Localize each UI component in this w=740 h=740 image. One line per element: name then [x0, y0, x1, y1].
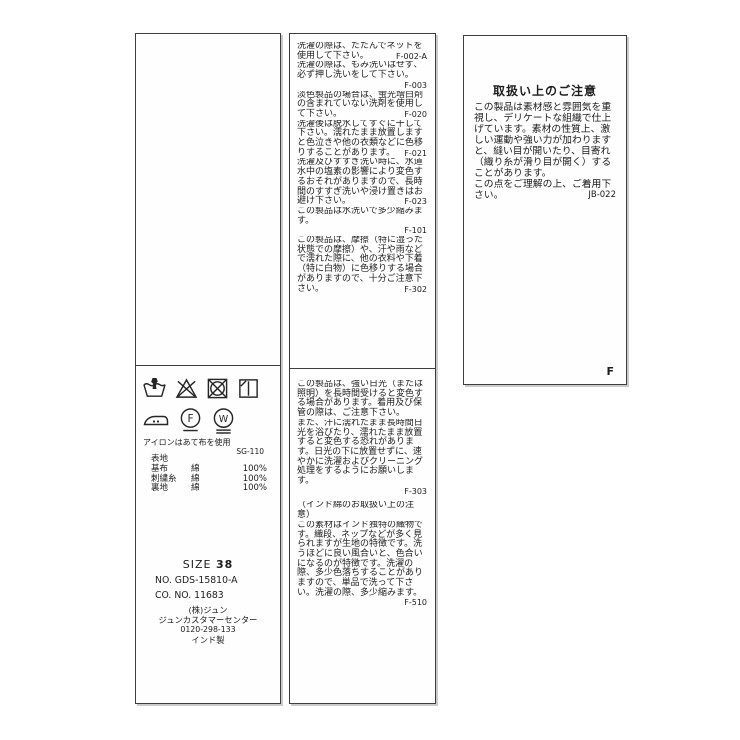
care-symbols-row-1	[142, 377, 260, 400]
item-number: NO. GDS-15810-A	[155, 575, 238, 586]
size-label: SIZE	[183, 558, 212, 571]
svg-text:W: W	[219, 414, 229, 425]
care-paragraph-code: F-510	[404, 598, 427, 608]
care-paragraph-code: F-002-A	[396, 52, 427, 62]
hand-wash-icon	[142, 377, 167, 400]
care-paragraph-code: F-023	[404, 197, 427, 207]
care-paragraph: この素材はインド独特の織物です。織段、ネップなどが多く見られますが生地の特徴です…	[297, 521, 427, 608]
country-of-origin: インド製	[136, 635, 280, 645]
maker-info: (株)ジュン ジュンカスタマーセンター 0120-298-133 インド製	[136, 605, 280, 645]
care-paragraph: 淡色製品の場合は、蛍光増白剤の含まれていない洗剤を使用して下さい。 F-020	[297, 91, 427, 120]
fabric-composition: 表地 基布 綿 100% 刺繍糸 綿 100% 裏地 綿 100%	[151, 455, 267, 494]
care-paragraph: この製品は、強い日光（または照明）を長時間受けると変色する場合があります。着用及…	[297, 380, 427, 419]
notice-paragraph-code: JB-022	[588, 190, 616, 201]
composition-row: 裏地 綿 100%	[151, 484, 267, 494]
middle-panel-divider	[290, 368, 435, 369]
svg-text:F: F	[187, 413, 193, 425]
handling-notice-body: この製品は素材感と雰囲気を重視し、デリケートな組織で仕上げています。素材の性質上…	[474, 102, 616, 201]
company-number: CO. NO. 11683	[155, 590, 224, 601]
notice-paragraph: この製品は素材感と雰囲気を重視し、デリケートな組織で仕上げています。素材の性質上…	[474, 102, 616, 179]
care-paragraph: F-303	[297, 487, 427, 497]
care-paragraph-code: F-020	[404, 110, 427, 120]
corner-mark: F	[606, 365, 614, 378]
care-paragraph: F-101	[297, 226, 427, 236]
care-paragraph-text: この製品は、強い日光（または照明）を長時間受けると変色する場合があります。着用及…	[297, 380, 423, 418]
do-not-tumble-dry-icon	[206, 377, 229, 400]
wet-clean-very-gentle-icon: W	[212, 407, 235, 435]
composition-part: 裏地	[151, 484, 191, 494]
iron-note: アイロンはあて布を使用	[143, 437, 230, 448]
care-paragraph: この製品は、摩擦（特に湿った状態での摩擦）や、汗や雨などで濡れた際に、他の衣料や…	[297, 236, 427, 294]
composition-table: 基布 綿 100% 刺繍糸 綿 100% 裏地 綿 100%	[151, 465, 267, 494]
care-symbols-row-2: F W	[143, 407, 235, 435]
composition-material: 綿	[191, 484, 243, 494]
care-paragraph-code: F-303	[404, 487, 427, 497]
care-paragraph-code: F-302	[404, 285, 427, 295]
washing-instructions-block-1: 洗濯の際は、たたんでネットを使用して下さい。 F-002-A 洗濯の際は、もみ洗…	[290, 34, 435, 368]
notice-paragraph: この点をご理解の上、ご着用下さい。 JB-022	[474, 179, 616, 201]
do-not-bleach-icon	[175, 377, 198, 400]
notice-paragraph-text: この製品は素材感と雰囲気を重視し、デリケートな組織で仕上げています。素材の性質上…	[474, 102, 611, 179]
care-tag-left-panel: F W アイロンはあて布を使用 SG-110 表地 基布 綿 100%	[135, 33, 281, 704]
care-paragraph: 洗濯の際は、もみ洗いはせず、必ず押し洗いをして下さい。	[297, 61, 427, 80]
size-line: SIZE 38	[136, 558, 280, 571]
handling-notice-title: 取扱い上のご注意	[464, 82, 626, 99]
dry-clean-f-gentle-icon: F	[179, 407, 202, 433]
company-name: (株)ジュン	[136, 605, 280, 615]
customer-center: ジュンカスタマーセンター	[136, 615, 280, 625]
care-paragraph-text: （インド綿のお取扱い上の注意）	[297, 501, 414, 520]
iron-medium-icon	[143, 407, 169, 429]
care-paragraph: この製品は水洗いで多少縮みます。	[297, 207, 427, 226]
care-paragraph-code: F-021	[404, 149, 427, 159]
left-panel-divider	[136, 365, 280, 366]
care-paragraph: （インド綿のお取扱い上の注意）	[297, 501, 427, 520]
care-paragraph: また、汗に濡れたまま長時間日光を浴びたり、濡れたまま放置すると変色する恐れがあり…	[297, 419, 427, 487]
care-paragraph: 洗濯及びすすぎ洗い時に、水道水中の塩素の影響により変色するおそれがありますので、…	[297, 158, 427, 207]
washing-instructions-block-2: この製品は、強い日光（または照明）を長時間受けると変色する場合があります。着用及…	[290, 370, 435, 703]
care-paragraph-code: F-003	[404, 81, 427, 91]
care-paragraph-text: この製品は水洗いで多少縮みます。	[297, 207, 423, 226]
phone-number: 0120-298-133	[136, 625, 280, 635]
care-paragraph-text: この素材はインド独特の織物です。織段、ネップなどが多く見られますが生地の特徴です…	[297, 521, 423, 598]
care-paragraph-code: F-101	[404, 226, 427, 236]
care-paragraph-text: 洗濯の際は、もみ洗いはせず、必ず押し洗いをして下さい。	[297, 61, 422, 80]
care-paragraph: 洗濯の際は、たたんでネットを使用して下さい。 F-002-A	[297, 42, 427, 61]
line-dry-in-shade-icon	[237, 377, 260, 400]
composition-percent: 100%	[243, 484, 267, 494]
care-tag-right-panel: 取扱い上のご注意 この製品は素材感と雰囲気を重視し、デリケートな組織で仕上げてい…	[463, 35, 627, 385]
care-paragraph: F-003	[297, 81, 427, 91]
care-paragraph-text: また、汗に濡れたまま長時間日光を浴びたり、濡れたまま放置すると変色する恐れがあり…	[297, 419, 423, 486]
care-paragraph: 洗濯後は脱水してすぐに干して下さい。濡れたまま放置しますと色泣きや他の衣類などに…	[297, 120, 427, 159]
care-tag-middle-panel: 洗濯の際は、たたんでネットを使用して下さい。 F-002-A 洗濯の際は、もみ洗…	[289, 33, 436, 704]
size-value: 38	[216, 558, 233, 571]
